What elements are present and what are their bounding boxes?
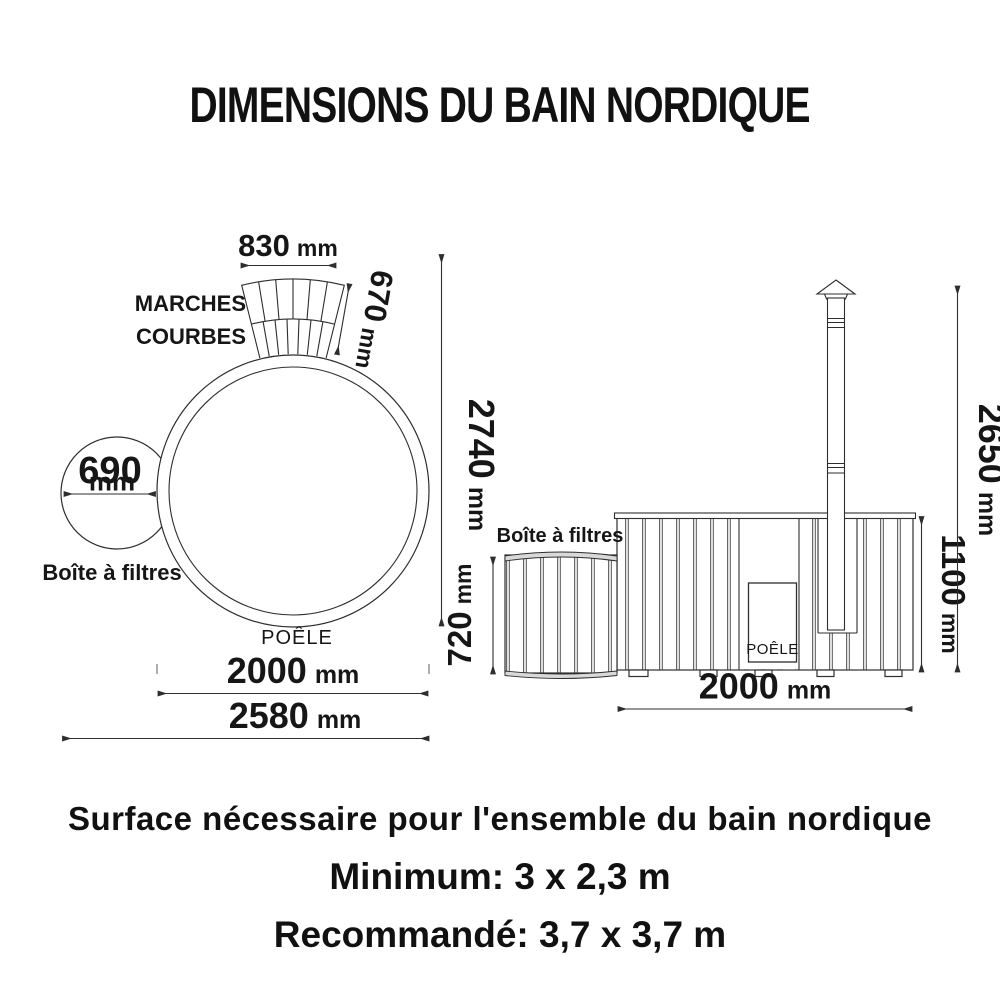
tub-diameter-dim-label: 2000mm — [227, 650, 360, 691]
side-view-filter-box-label: Boîte à filtres — [497, 525, 624, 547]
overall-length-dim-label: 2740mm — [461, 399, 502, 532]
steps-depth-dim-line — [337, 284, 350, 355]
side-view-filter-box — [505, 552, 617, 679]
curved-steps-label-line1: MARCHES — [135, 291, 246, 316]
filter-diameter-dim-unit: mm — [89, 467, 135, 497]
side-view-stove-label: POÊLE — [746, 641, 799, 658]
chimney-cap-icon — [817, 280, 855, 294]
curved-steps-label-line2: COURBES — [136, 324, 246, 349]
side-view-tub-rim — [615, 513, 916, 519]
page-title-text: DIMENSIONS DU BAIN NORDIQUE — [190, 76, 810, 134]
top-view-curved-steps — [242, 279, 345, 358]
dimensions-diagram: 830mm 670mm MARCHES COURBES 690 mm Boîte… — [0, 230, 1000, 775]
surface-requirements: Surface nécessaire pour l'ensemble du ba… — [0, 800, 1000, 956]
overall-width-dim-label: 2580mm — [229, 695, 362, 736]
page-title: DIMENSIONS DU BAIN NORDIQUE — [0, 76, 1000, 134]
page: DIMENSIONS DU BAIN NORDIQUE — [0, 0, 1000, 1000]
steps-depth-dim-label: 670mm — [348, 268, 400, 372]
surface-minimum: Minimum: 3 x 2,3 m — [0, 856, 1000, 898]
total-height-dim-label: 2650mm — [971, 404, 1000, 537]
top-view-stove-label: POÊLE — [261, 626, 333, 649]
tub-width-dim-label: 2000mm — [699, 666, 832, 707]
top-view-filter-box-label: Boîte à filtres — [42, 560, 181, 585]
surface-recommended: Recommandé: 3,7 x 3,7 m — [0, 914, 1000, 956]
filter-height-dim-label: 720mm — [441, 564, 478, 667]
top-view: 830mm 670mm MARCHES COURBES 690 mm Boîte… — [42, 230, 502, 739]
tub-height-dim-label: 1100mm — [935, 534, 972, 654]
steps-width-dim-label: 830mm — [238, 230, 338, 263]
side-view: POÊLE — [441, 280, 1000, 709]
surface-title: Surface nécessaire pour l'ensemble du ba… — [0, 800, 1000, 838]
top-view-tub-outer-circle — [157, 355, 429, 627]
